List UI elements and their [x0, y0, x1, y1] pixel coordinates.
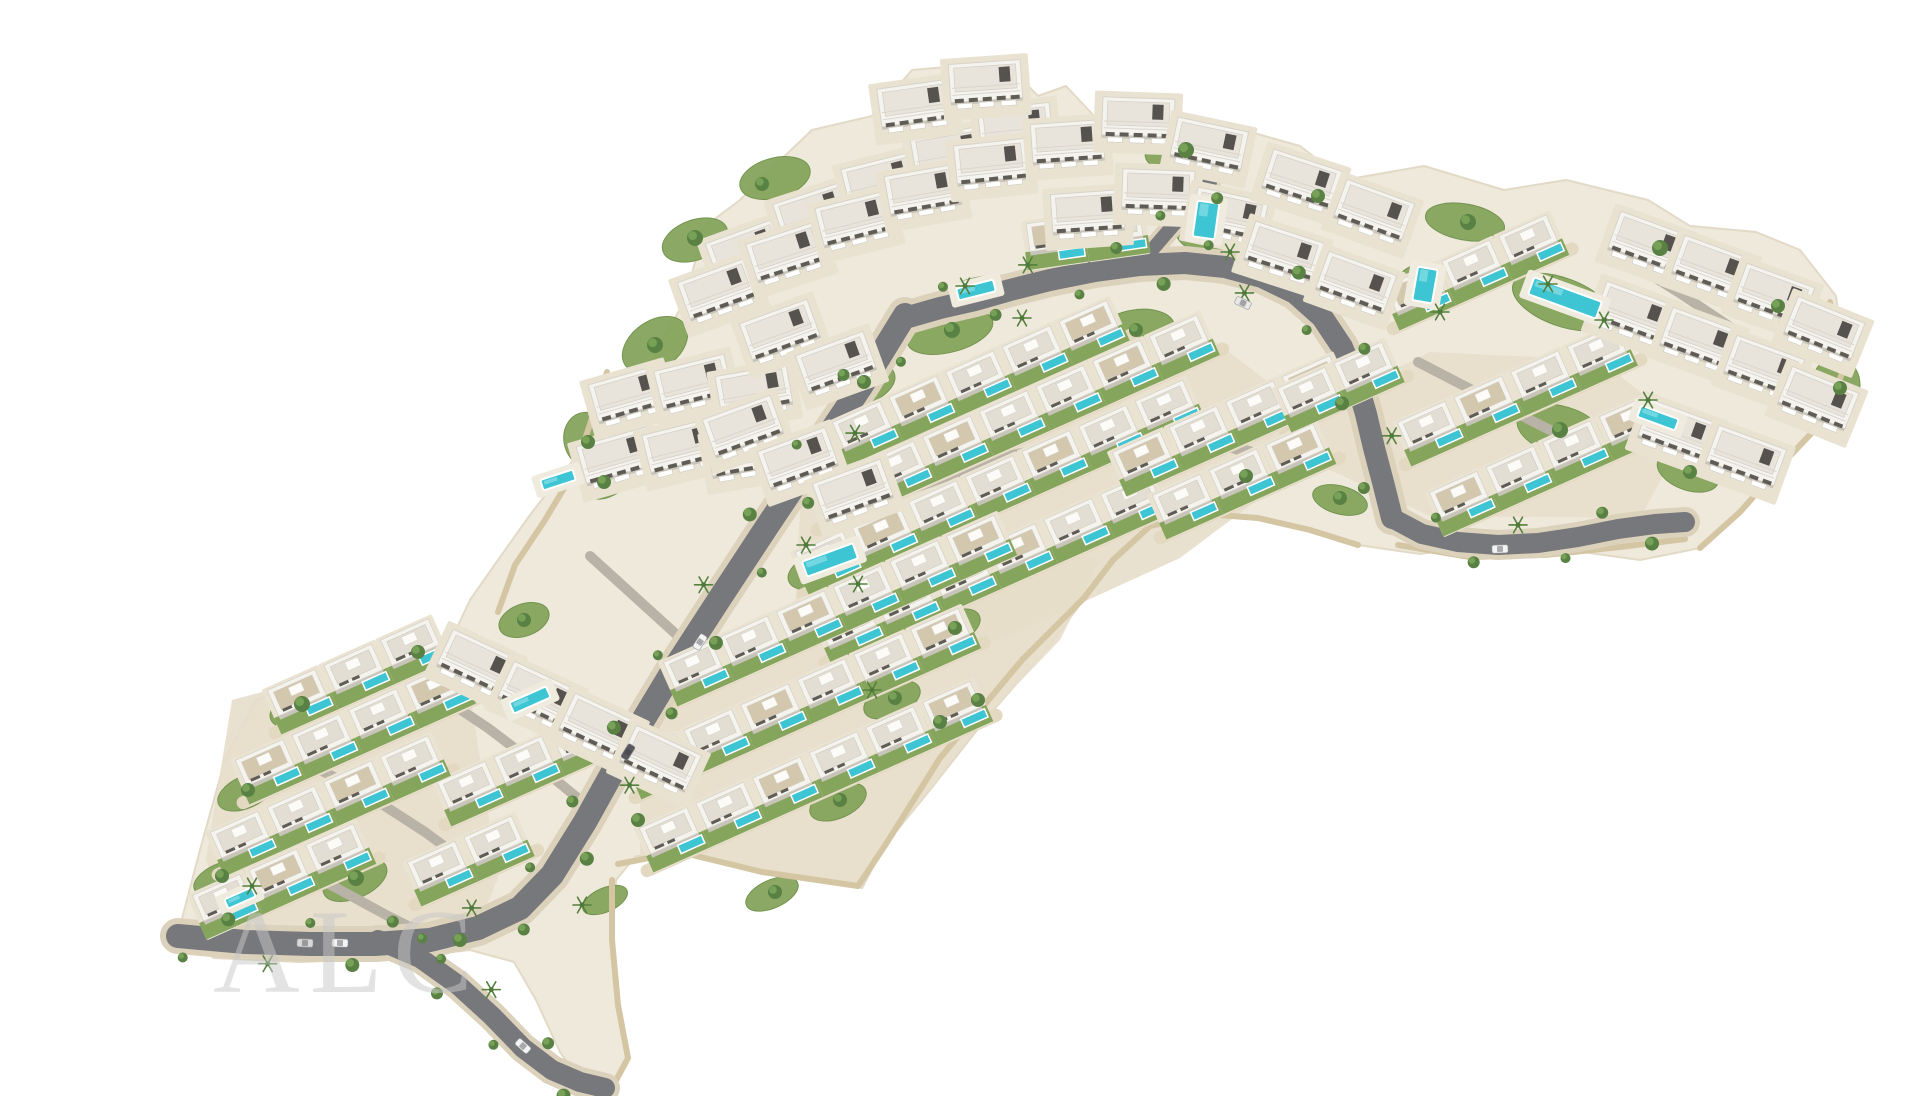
tree-highlight	[519, 924, 526, 931]
palm-crown	[627, 783, 632, 788]
tree-highlight	[769, 886, 777, 894]
palm-crown	[963, 284, 968, 289]
tree	[1771, 299, 1785, 313]
tree	[647, 337, 663, 353]
tree-highlight	[242, 784, 250, 792]
stair-core	[1004, 145, 1017, 161]
tree	[294, 696, 310, 712]
palm-crown	[870, 688, 875, 693]
tree-highlight	[949, 622, 957, 630]
balcony	[1127, 209, 1142, 215]
tree	[948, 621, 962, 635]
stair-core	[1101, 196, 1113, 212]
tree	[666, 707, 678, 719]
palm-crown	[1389, 433, 1394, 438]
tree-highlight	[756, 178, 764, 186]
apartment-window	[969, 98, 978, 103]
tree	[411, 645, 425, 659]
tree	[755, 177, 769, 191]
tree	[1431, 513, 1441, 523]
tree	[709, 636, 723, 650]
car-windshield	[1497, 546, 1503, 552]
tree	[1645, 537, 1659, 551]
tree-highlight	[581, 853, 589, 861]
apartment-window	[1099, 226, 1108, 231]
tree-highlight	[934, 716, 942, 724]
development-aerial-view: ALC	[0, 0, 1920, 1096]
palm-crown	[1438, 310, 1443, 315]
tree-highlight	[1684, 466, 1692, 474]
tree	[1333, 491, 1347, 505]
tree-highlight	[1130, 324, 1138, 332]
tree	[241, 783, 255, 797]
tree	[1596, 507, 1608, 519]
apartment-window	[1065, 157, 1074, 162]
apartment-window	[1113, 225, 1122, 230]
balcony	[1103, 230, 1118, 236]
apartment-block	[940, 53, 1032, 121]
tree-highlight	[1561, 554, 1567, 560]
apartment-window	[1106, 132, 1115, 136]
tree	[944, 322, 960, 338]
stair-core	[1081, 126, 1093, 142]
tree	[1468, 556, 1480, 568]
palm-crown	[1242, 290, 1247, 295]
tree	[215, 869, 229, 883]
apartment-window	[1079, 156, 1088, 161]
tree-highlight	[598, 476, 606, 484]
tree-highlight	[1240, 470, 1248, 478]
tree-highlight	[412, 646, 420, 654]
tree	[1683, 465, 1697, 479]
tree	[757, 568, 767, 578]
balcony	[1129, 138, 1144, 144]
tree	[687, 230, 703, 246]
balcony	[957, 103, 972, 109]
tree	[1302, 325, 1312, 335]
palm-crown	[1516, 522, 1521, 527]
apartment-window	[1011, 95, 1020, 100]
tree	[348, 870, 364, 886]
tree-highlight	[1302, 326, 1308, 332]
tree-highlight	[1834, 382, 1842, 390]
tree-highlight	[632, 814, 640, 822]
tree	[857, 375, 871, 389]
tree	[580, 852, 594, 866]
tree-highlight	[648, 338, 657, 347]
tree	[517, 613, 531, 627]
tree	[1358, 343, 1370, 355]
tree	[653, 650, 663, 660]
masterplan-render: ALC	[0, 0, 1920, 1096]
tree	[1157, 277, 1171, 291]
tree	[802, 497, 814, 509]
tree	[933, 715, 947, 729]
car	[1492, 545, 1508, 554]
palm-crown	[1228, 250, 1233, 255]
stair-core	[999, 66, 1011, 82]
tree-highlight	[1432, 513, 1438, 519]
tree-highlight	[1461, 215, 1470, 224]
tree	[488, 1040, 498, 1050]
tree-highlight	[688, 231, 697, 240]
tree	[833, 793, 847, 807]
tree-highlight	[758, 568, 764, 574]
tree-highlight	[1336, 397, 1344, 405]
palm-crown	[489, 987, 494, 992]
apartment-window	[1071, 228, 1080, 233]
tree	[525, 862, 535, 872]
tree	[607, 721, 621, 735]
apartment-window	[1120, 132, 1129, 136]
palm-crown	[1602, 318, 1607, 323]
tree-highlight	[744, 509, 752, 517]
tree-highlight	[1075, 290, 1081, 296]
tree	[1110, 242, 1122, 254]
tree	[1311, 189, 1325, 203]
apartment-window	[1148, 133, 1157, 137]
tree-highlight	[1553, 423, 1562, 432]
tree-highlight	[1179, 143, 1188, 152]
apartment-window	[1140, 204, 1149, 208]
tree-highlight	[858, 376, 866, 384]
stair-core	[1152, 105, 1164, 120]
tree	[1178, 142, 1194, 158]
tree	[597, 475, 611, 489]
palm-crown	[1546, 282, 1551, 287]
tree	[1292, 266, 1306, 280]
stair-core	[1172, 177, 1184, 192]
palm-crown	[1646, 398, 1651, 403]
tree-highlight	[349, 871, 358, 880]
tree-highlight	[608, 722, 616, 730]
tree	[1155, 211, 1165, 221]
apartment-window	[1126, 204, 1135, 208]
tree-highlight	[1653, 241, 1662, 250]
tree	[792, 440, 802, 450]
balcony	[1107, 137, 1122, 143]
tree-highlight	[803, 498, 810, 505]
tree	[1833, 381, 1847, 395]
tree-highlight	[518, 614, 526, 622]
tree-highlight	[990, 310, 997, 317]
balcony	[1059, 233, 1074, 239]
balcony	[979, 101, 994, 107]
tree-highlight	[1293, 267, 1301, 275]
apartment-window	[1051, 158, 1060, 163]
tree	[1652, 240, 1668, 256]
tree-highlight	[838, 370, 845, 377]
balcony	[1039, 163, 1054, 169]
apartment-window	[1085, 227, 1094, 232]
tree	[581, 435, 595, 449]
tree-highlight	[567, 796, 574, 803]
apartment-window	[1093, 155, 1102, 160]
balcony	[1061, 161, 1076, 167]
tree	[631, 813, 645, 827]
apartment-window	[1057, 229, 1066, 234]
tree	[1561, 553, 1571, 563]
tree	[896, 357, 906, 367]
apartment-window	[983, 97, 992, 102]
balcony	[1151, 138, 1166, 144]
tree	[1204, 240, 1214, 250]
tree	[566, 796, 578, 808]
tree-highlight	[1156, 211, 1162, 217]
tree-highlight	[897, 358, 903, 364]
tree-highlight	[710, 637, 718, 645]
tree-highlight	[945, 323, 954, 332]
tree-highlight	[1597, 508, 1604, 515]
tree	[518, 923, 530, 935]
tree-highlight	[489, 1041, 495, 1047]
tree-highlight	[939, 283, 945, 289]
palm-crown	[580, 903, 585, 908]
tree-highlight	[1158, 278, 1166, 286]
tree-highlight	[216, 870, 224, 878]
tree-highlight	[1334, 492, 1342, 500]
tree	[938, 282, 948, 292]
tree-highlight	[295, 697, 304, 706]
tree-highlight	[1646, 538, 1654, 546]
tree	[1460, 214, 1476, 230]
palm-crown	[852, 431, 857, 436]
tree	[1074, 289, 1084, 299]
tree	[768, 885, 782, 899]
tree-highlight	[889, 692, 897, 700]
apartment-window	[1168, 205, 1177, 209]
tree-highlight	[834, 794, 842, 802]
tree	[990, 309, 1002, 321]
palm-crown	[1025, 262, 1030, 267]
tree	[178, 953, 188, 963]
pool-highlight	[1199, 203, 1209, 217]
palm-crown	[856, 582, 861, 587]
tree	[743, 507, 757, 521]
balcony	[1083, 160, 1098, 166]
tree-highlight	[1359, 344, 1366, 351]
tree-highlight	[1312, 190, 1320, 198]
tree-highlight	[972, 694, 980, 702]
palm-crown	[701, 582, 706, 587]
tree-highlight	[1359, 483, 1366, 490]
palm-crown	[804, 543, 809, 548]
balcony	[1081, 231, 1096, 237]
tree	[1335, 396, 1349, 410]
tree-highlight	[178, 953, 184, 959]
apartment-window	[997, 96, 1006, 101]
palm-crown	[1020, 316, 1025, 321]
balcony	[1001, 100, 1016, 106]
tree-highlight	[582, 436, 590, 444]
tree	[1358, 482, 1370, 494]
tree	[1239, 469, 1253, 483]
tree-highlight	[1469, 557, 1476, 564]
tree-highlight	[1772, 300, 1780, 308]
tree	[1552, 422, 1568, 438]
tree-highlight	[1212, 193, 1219, 200]
tree-highlight	[526, 863, 532, 869]
tree	[542, 1037, 554, 1049]
tree-highlight	[1204, 241, 1210, 247]
tree	[1129, 323, 1143, 337]
tree	[888, 691, 902, 705]
apartment-window	[1154, 205, 1163, 209]
tree-highlight	[543, 1038, 550, 1045]
stair-core	[927, 87, 940, 103]
watermark-text: ALC	[213, 885, 483, 1018]
tree-highlight	[654, 651, 660, 657]
tree-highlight	[666, 708, 673, 715]
tree	[1211, 192, 1223, 204]
tree-highlight	[1111, 243, 1118, 250]
tree	[971, 693, 985, 707]
apartment-window	[1037, 159, 1046, 164]
tree-highlight	[792, 440, 798, 446]
apartment-window	[1134, 133, 1143, 137]
apartment-window	[955, 99, 964, 104]
tree	[838, 369, 850, 381]
